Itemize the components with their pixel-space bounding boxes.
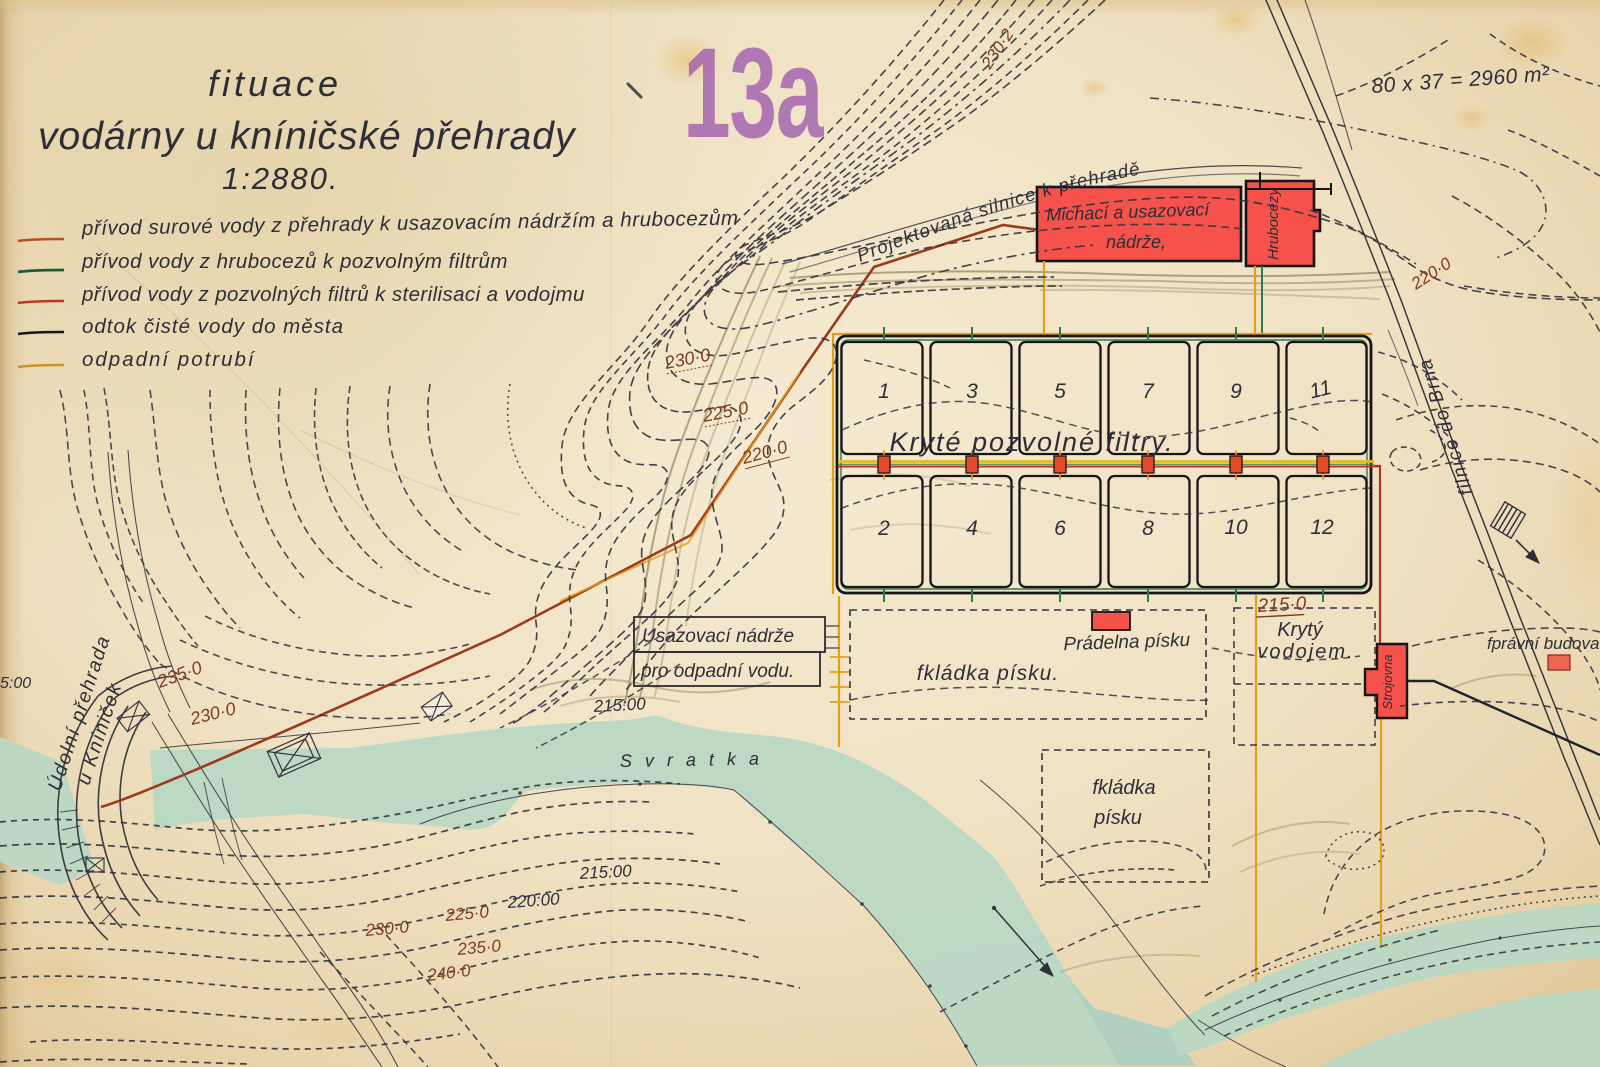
svg-text:odpadní potrubí: odpadní potrubí <box>82 348 256 371</box>
svg-text:3: 3 <box>966 380 978 403</box>
svg-text:12: 12 <box>1310 516 1334 539</box>
svg-text:fprávní budova: fprávní budova <box>1487 634 1599 653</box>
svg-text:10: 10 <box>1224 516 1248 539</box>
svg-text:215:00: 215:00 <box>592 694 646 716</box>
svg-text:Svratka: Svratka <box>620 748 772 771</box>
svg-text:215·0: 215·0 <box>1256 593 1307 617</box>
svg-text:8: 8 <box>1142 517 1154 540</box>
svg-text:215:00: 215:00 <box>578 861 632 883</box>
svg-text:fituace: fituace <box>208 63 342 104</box>
svg-text:vodojem.: vodojem. <box>1257 641 1354 663</box>
svg-text:přívod vody z hrubocezů k pozv: přívod vody z hrubocezů k pozvolným filt… <box>81 250 508 273</box>
svg-text:Strojovna: Strojovna <box>1380 655 1395 710</box>
svg-text:4: 4 <box>966 517 978 540</box>
svg-text:Kryté pozvolné filtry.: Kryté pozvolné filtry. <box>889 427 1174 457</box>
svg-text:225·0: 225·0 <box>444 902 491 925</box>
svg-text:5:00: 5:00 <box>0 675 31 692</box>
svg-text:odtok čisté vody do města: odtok čisté vody do města <box>82 315 344 338</box>
svg-text:1:2880.: 1:2880. <box>222 161 339 196</box>
svg-text:6: 6 <box>1054 517 1066 540</box>
svg-text:přívod vody z pozvolných filtr: přívod vody z pozvolných filtrů k steril… <box>81 283 585 306</box>
svg-text:písku: písku <box>1093 807 1142 829</box>
svg-text:13a: 13a <box>683 22 825 165</box>
svg-text:fkládka: fkládka <box>1092 777 1155 799</box>
svg-text:220:00: 220:00 <box>506 889 561 912</box>
svg-text:5: 5 <box>1054 380 1066 403</box>
svg-text:7: 7 <box>1142 380 1155 403</box>
svg-text:2: 2 <box>877 517 890 540</box>
svg-text:230·0: 230·0 <box>364 917 411 940</box>
svg-text:vodárny u kníničské přehrady: vodárny u kníničské přehrady <box>38 115 577 158</box>
svg-text:Usazovací nádrže: Usazovací nádrže <box>642 626 794 647</box>
svg-text:Prádelna písku: Prádelna písku <box>1063 630 1191 655</box>
svg-text:Krytý: Krytý <box>1277 619 1324 641</box>
svg-text:235·0: 235·0 <box>456 936 503 959</box>
svg-text:pro odpadní vodu.: pro odpadní vodu. <box>640 661 794 682</box>
svg-text:9: 9 <box>1230 380 1242 403</box>
svg-text:nádrže,: nádrže, <box>1106 232 1166 252</box>
svg-text:Hrubocezy: Hrubocezy <box>1265 187 1282 260</box>
svg-text:fkládka písku.: fkládka písku. <box>917 662 1059 685</box>
svg-text:1: 1 <box>878 380 890 403</box>
